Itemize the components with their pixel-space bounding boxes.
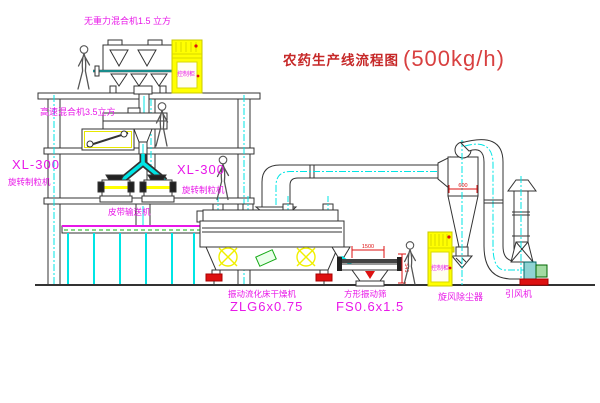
label-cyclone: 旋风除尘器 bbox=[438, 293, 483, 302]
label-dryer-model: ZLG6x0.75 bbox=[230, 300, 303, 313]
indicator-dot-icon bbox=[194, 44, 197, 47]
cabinet-right-text: 控制柜 bbox=[431, 264, 449, 272]
control-cabinet-top: 控制柜 bbox=[172, 40, 202, 93]
worker-figure-icon bbox=[78, 46, 90, 89]
label-belt-conveyor: 皮带输送机 bbox=[108, 208, 151, 217]
label-sieve-name: 方形振动筛 bbox=[344, 290, 387, 299]
label-granulator-left-model: XL-300 bbox=[12, 158, 60, 171]
cyclone-width-dimension: 600 bbox=[458, 183, 467, 189]
label-granulator-left-name: 旋转制粒机 bbox=[8, 178, 51, 187]
label-gravity-mixer: 无重力混合机1.5 立方 bbox=[84, 17, 171, 26]
label-granulator-right-name: 旋转制粒机 bbox=[182, 186, 225, 195]
indicator-dot-icon bbox=[197, 75, 200, 78]
diagram-title: 农药生产线流程图 (500kg/h) bbox=[283, 46, 505, 72]
indicator-dot-icon bbox=[449, 267, 452, 270]
flow-diagram-canvas: 控制柜 bbox=[0, 0, 600, 403]
draft-fan-drawing bbox=[520, 262, 548, 285]
control-cabinet-right: 控制柜 bbox=[428, 232, 452, 286]
title-text: 农药生产线流程图 bbox=[283, 49, 399, 72]
label-mid-mixer: 高速混合机3.5立方 bbox=[40, 108, 116, 117]
indicator-dot-icon bbox=[447, 235, 450, 238]
label-sieve-model: FS0.6x1.5 bbox=[336, 300, 404, 313]
label-dryer-name: 振动流化床干燥机 bbox=[228, 290, 296, 299]
sieve-width-dimension: 1500 bbox=[362, 244, 374, 250]
cabinet-top-text: 控制柜 bbox=[177, 70, 195, 78]
granulator-right-drawing bbox=[140, 175, 176, 202]
label-fan: 引风机 bbox=[505, 290, 532, 299]
label-granulator-right-model: XL-300 bbox=[177, 163, 225, 176]
title-capacity: (500kg/h) bbox=[403, 46, 505, 72]
gravity-mixer-drawing bbox=[93, 40, 185, 114]
